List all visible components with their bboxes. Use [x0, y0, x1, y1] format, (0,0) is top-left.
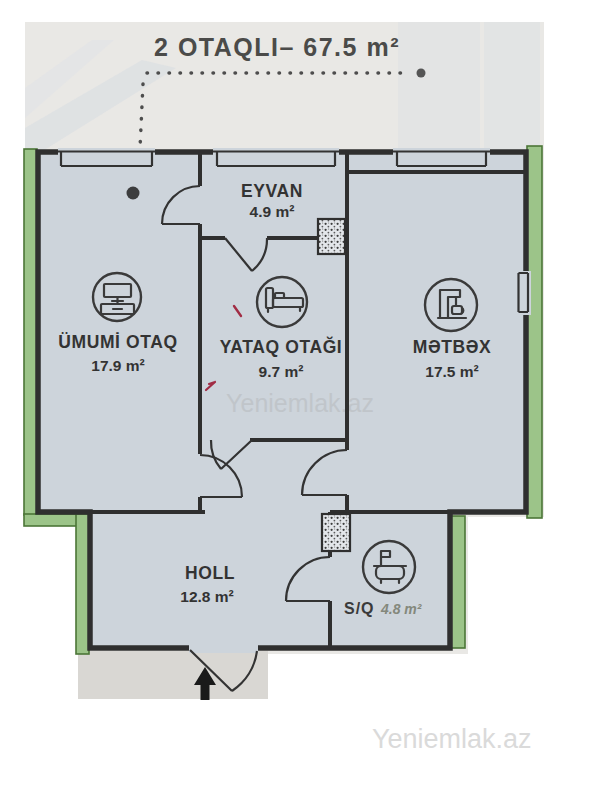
room-metbex-name: MƏTBƏX — [413, 337, 492, 357]
photo-streak — [484, 22, 540, 150]
plan-title: 2 OTAQLI– 67.5 m² — [154, 33, 400, 61]
photo-streak — [398, 22, 480, 150]
window-eyvan — [213, 148, 339, 170]
leader-end-dot — [417, 69, 426, 78]
bottom-watermark: Yeniemlak.az — [372, 724, 532, 754]
center-watermark: Yeniemlak.az — [226, 389, 374, 417]
room-sq-area: 4.8 m² — [380, 601, 422, 617]
window-metbex-right — [515, 271, 531, 315]
floor-plan-canvas: Yeniemlak.az — [0, 0, 600, 800]
room-sq-name: S/Q — [344, 600, 375, 617]
room-eyvan-name: EYVAN — [241, 181, 303, 201]
room-yataq-area: 9.7 m² — [259, 363, 304, 380]
window-metbex — [393, 148, 490, 170]
floor-plan-page: Yeniemlak.az — [0, 0, 600, 800]
window-umumi — [58, 148, 155, 170]
room-metbex-area: 17.5 m² — [425, 363, 478, 380]
room-umumi-name: ÜMUMİ OTAQ — [58, 332, 177, 352]
entrance-opening — [189, 644, 258, 653]
room-yataq-name: YATAQ OTAĞI — [220, 336, 343, 357]
hole-punch-dot — [127, 187, 140, 200]
room-eyvan-area: 4.9 m² — [250, 203, 295, 220]
room-umumi-area: 17.9 m² — [91, 357, 144, 374]
room-holl-name: HOLL — [185, 563, 235, 583]
room-holl-area: 12.8 m² — [180, 588, 233, 605]
